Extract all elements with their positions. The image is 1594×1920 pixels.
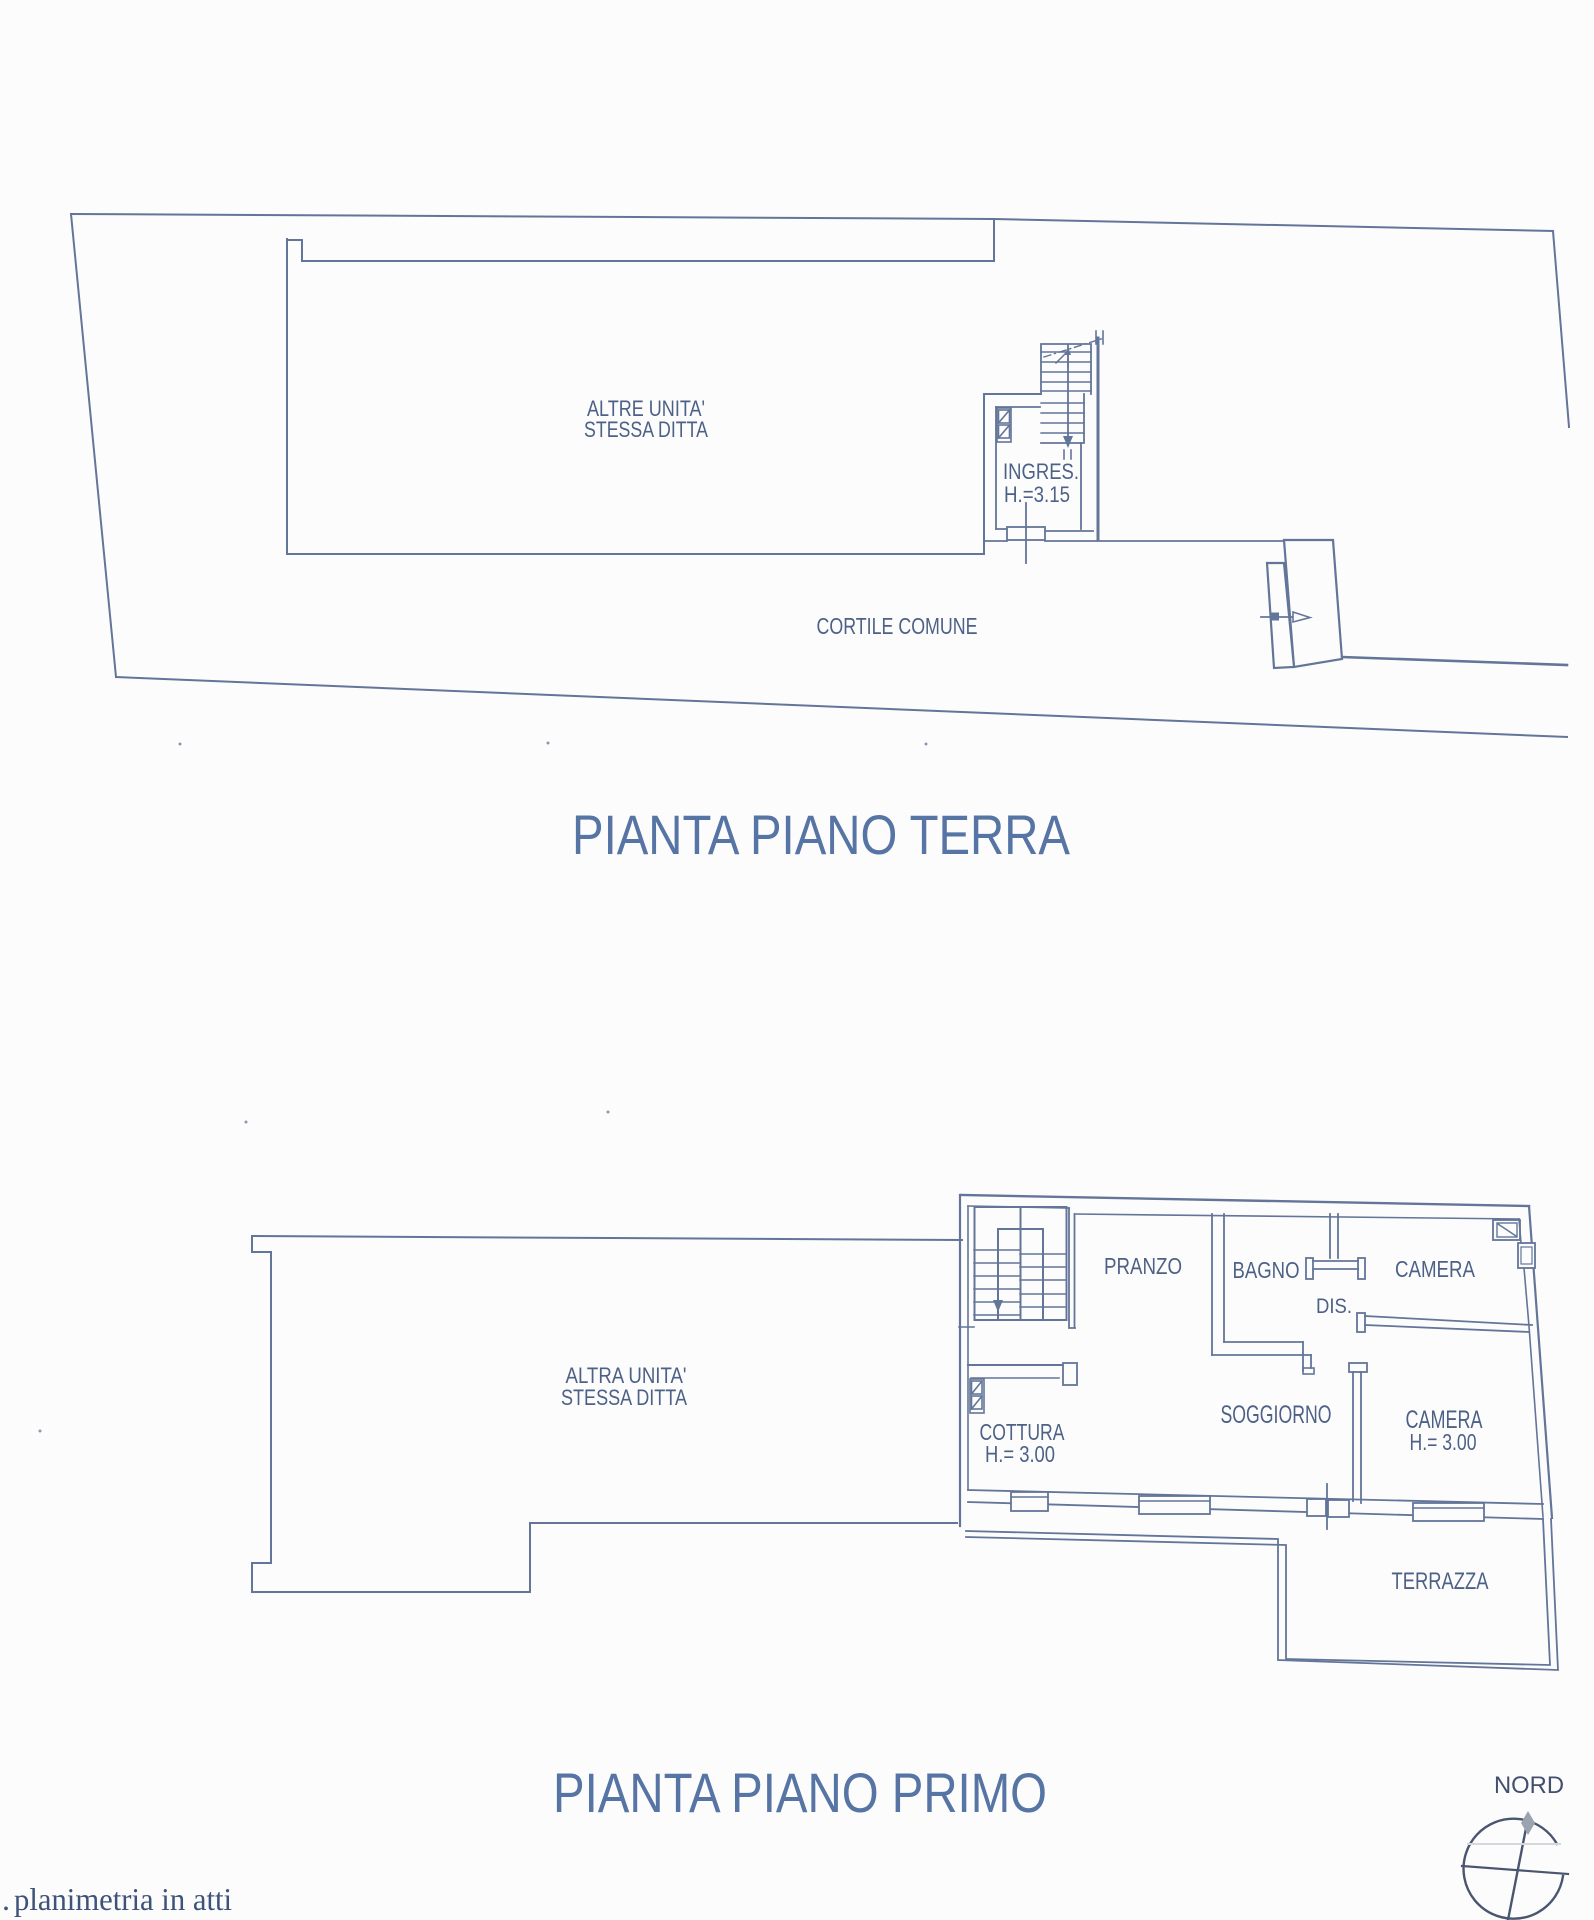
svg-text:BAGNO: BAGNO [1233, 1257, 1300, 1283]
svg-text:planimetria in atti: planimetria in atti [14, 1881, 232, 1917]
svg-text:PIANTA PIANO PRIMO: PIANTA PIANO PRIMO [553, 1761, 1047, 1824]
svg-text:STESSA DITTA: STESSA DITTA [584, 417, 708, 442]
svg-text:INGRES.: INGRES. [1003, 459, 1079, 484]
svg-text:H.= 3.00: H.= 3.00 [1410, 1429, 1477, 1455]
svg-text:DIS.: DIS. [1316, 1295, 1352, 1318]
svg-text:PIANTA PIANO TERRA: PIANTA PIANO TERRA [572, 803, 1071, 866]
svg-text:H.= 3.00: H.= 3.00 [985, 1441, 1055, 1467]
svg-text:CORTILE COMUNE: CORTILE COMUNE [817, 613, 978, 639]
svg-text:NORD: NORD [1494, 1772, 1564, 1799]
svg-text:SOGGIORNO: SOGGIORNO [1221, 1401, 1332, 1429]
svg-text:TERRAZZA: TERRAZZA [1392, 1568, 1489, 1595]
svg-text:H.=3.15: H.=3.15 [1004, 482, 1070, 507]
svg-text:CAMERA: CAMERA [1395, 1256, 1476, 1282]
svg-text:STESSA DITTA: STESSA DITTA [561, 1385, 687, 1410]
svg-text:PRANZO: PRANZO [1104, 1253, 1182, 1279]
svg-text:.: . [2, 1881, 10, 1917]
